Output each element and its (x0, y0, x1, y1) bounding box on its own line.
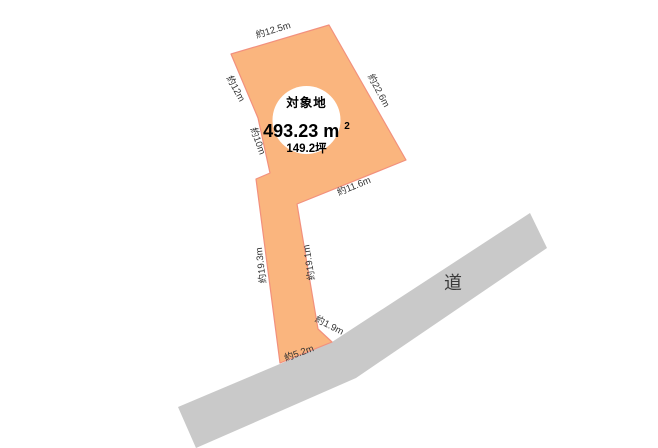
parcel-area-label: 493.23 m 2 (263, 121, 350, 141)
parcel-area-unit-superscript: 2 (344, 121, 350, 132)
road-shape (178, 213, 547, 448)
land-plot-diagram: 対象地 493.23 m 2 149.2坪 道 約12.5m 約22.6m 約1… (0, 0, 658, 448)
parcel-tsubo-label: 149.2坪 (286, 142, 327, 155)
parcel-area-unit: m (323, 121, 339, 141)
parcel-area-value: 493.23 (263, 121, 318, 141)
parcel-name-label: 対象地 (285, 95, 327, 110)
site-plan-svg: 対象地 493.23 m 2 149.2坪 道 約12.5m 約22.6m 約1… (0, 0, 658, 448)
road-label: 道 (444, 273, 462, 293)
